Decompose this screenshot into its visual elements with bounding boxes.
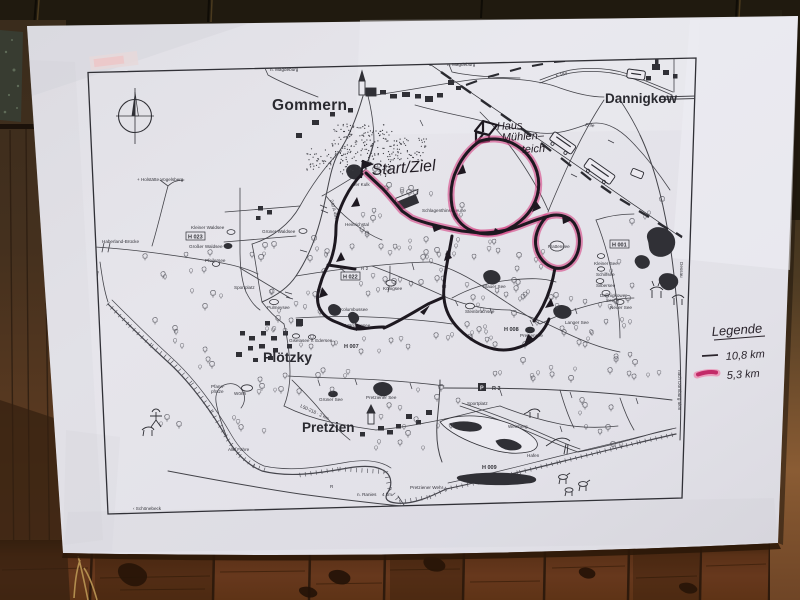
svg-text:n. Magdeburg: n. Magdeburg <box>447 62 476 67</box>
svg-text:5,3 km: 5,3 km <box>726 368 760 382</box>
svg-text:teich: teich <box>522 143 546 156</box>
svg-text:Pretzien: Pretzien <box>302 420 355 435</box>
svg-text:Pulmeysee: Pulmeysee <box>267 305 290 310</box>
svg-text:Weinberg: Weinberg <box>508 424 528 429</box>
svg-text:+ Holstätte Vogelsberg: + Holstätte Vogelsberg <box>137 177 184 182</box>
svg-text:Großer Waldsee: Großer Waldsee <box>189 244 223 249</box>
svg-text:Schlagenthinscheune: Schlagenthinscheune <box>422 208 466 213</box>
svg-text:nach Dornburg 5km: nach Dornburg 5km <box>677 370 682 411</box>
svg-text:Kleiner Waldsee: Kleiner Waldsee <box>191 225 225 230</box>
svg-text:Wörth: Wörth <box>234 391 247 396</box>
svg-text:Pretziener Wehr: Pretziener Wehr <box>410 485 444 490</box>
svg-text:P: P <box>480 386 484 392</box>
svg-text:Dannigkow: Dannigkow <box>605 91 678 106</box>
svg-text:H 008: H 008 <box>504 327 519 333</box>
svg-text:Gommern: Gommern <box>272 97 347 114</box>
svg-text:Königsee: Königsee <box>383 286 403 291</box>
svg-text:Sportplatz: Sportplatz <box>467 401 488 406</box>
svg-text:Langer See: Langer See <box>565 320 589 325</box>
svg-text:Kolumbussee: Kolumbussee <box>340 307 368 312</box>
svg-text:Plattensee: Plattensee <box>548 244 570 249</box>
svg-text:Plötzky: Plötzky <box>263 349 312 365</box>
svg-text:H 023: H 023 <box>188 235 203 241</box>
svg-text:See: See <box>606 298 615 303</box>
svg-text:Blauer See: Blauer See <box>483 284 506 289</box>
svg-text:H 009: H 009 <box>482 465 497 471</box>
svg-text:Mühlen–: Mühlen– <box>502 130 546 144</box>
svg-text:Neuer See: Neuer See <box>610 305 632 310</box>
svg-text:H 022: H 022 <box>343 275 358 281</box>
svg-text:n. Ranies: n. Ranies <box>357 492 377 497</box>
svg-text:pfütze: pfütze <box>211 389 224 394</box>
svg-text:H 007: H 007 <box>344 344 359 350</box>
svg-text:Kleiner See: Kleiner See <box>594 261 618 266</box>
svg-text:Dessau: Dessau <box>679 262 684 278</box>
svg-text:Pfeilersee: Pfeilersee <box>205 258 226 263</box>
svg-text:Schilfsee: Schilfsee <box>596 272 615 277</box>
svg-text:R 3: R 3 <box>492 386 501 392</box>
svg-text:Giselasee v. Edersee: Giselasee v. Edersee <box>289 338 333 343</box>
svg-text:Haberland-Brücke: Haberland-Brücke <box>102 239 139 244</box>
svg-text:Grüner Waldsee: Grüner Waldsee <box>262 229 296 234</box>
svg-text:Hafen: Hafen <box>527 453 540 458</box>
svg-text:Steinbruchsee: Steinbruchsee <box>465 309 495 314</box>
svg-text:‹ Schönebeck: ‹ Schönebeck <box>133 506 162 511</box>
svg-text:n. Magdeburg: n. Magdeburg <box>270 67 299 72</box>
svg-text:Heinrichstal: Heinrichstal <box>345 222 369 227</box>
svg-text:R 2: R 2 <box>361 266 369 271</box>
svg-text:4 km: 4 km <box>382 492 392 497</box>
svg-text:Pretziener See: Pretziener See <box>366 395 397 400</box>
svg-text:Silbersee: Silbersee <box>596 283 616 288</box>
svg-text:Alte Fähre: Alte Fähre <box>228 447 250 452</box>
svg-text:H 001: H 001 <box>612 243 627 249</box>
svg-text:Grüner See: Grüner See <box>319 397 343 402</box>
svg-text:Sportplatz: Sportplatz <box>234 285 255 290</box>
